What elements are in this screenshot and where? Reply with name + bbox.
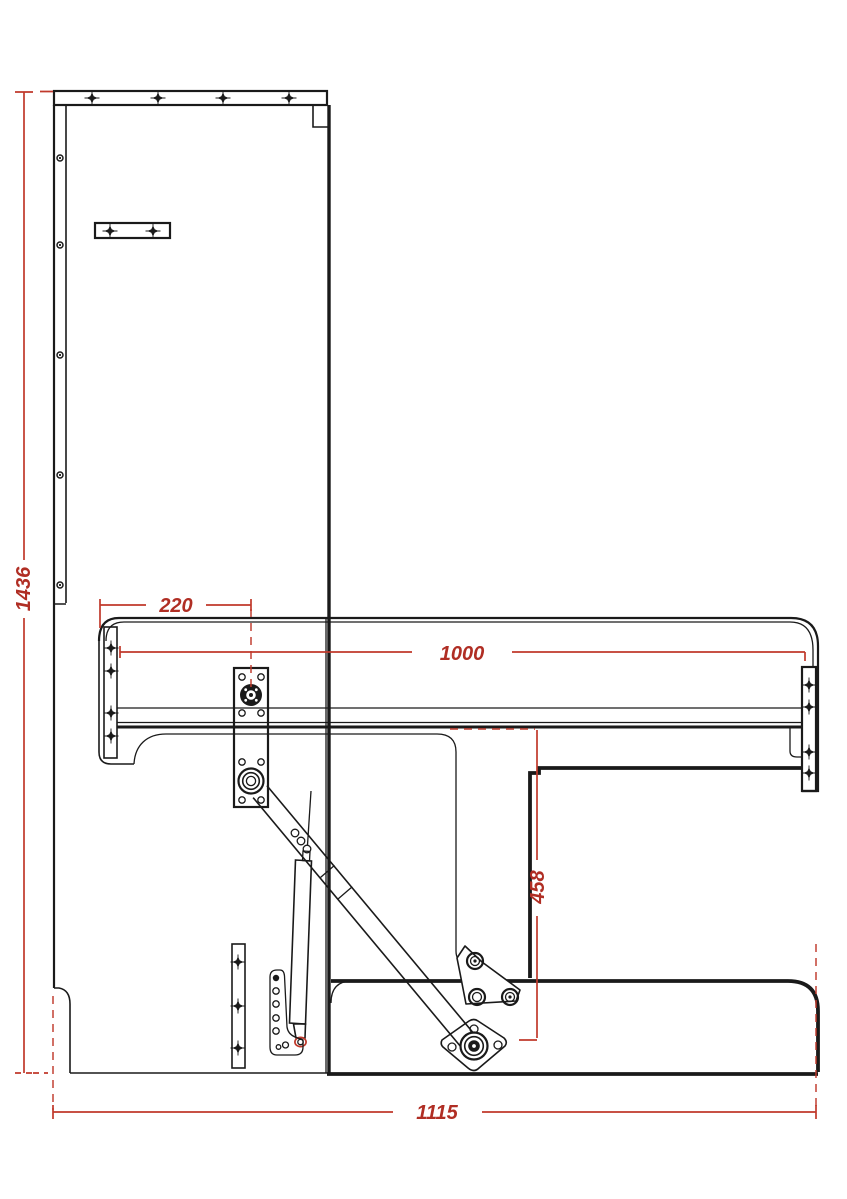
side-plate: [231, 944, 246, 1068]
top-rail-screws: [85, 91, 297, 106]
cabinet-panel: [54, 91, 328, 1074]
dim-label-1000: 1000: [440, 643, 485, 665]
right-inner-notch: [790, 728, 802, 757]
arm-end-bracket: [441, 1020, 506, 1071]
left-frame-bracket: [104, 627, 119, 758]
right-frame-bracket: [802, 667, 817, 791]
lift-arm: [253, 786, 480, 1053]
toe-kick-step: [54, 988, 70, 1073]
dim-label-458: 458: [527, 869, 549, 904]
dim-pivot-offset: 220: [100, 595, 251, 688]
bed-frame: [99, 618, 818, 962]
dim-overall-width: 1115: [53, 944, 816, 1124]
mounting-bracket-small: [95, 223, 170, 239]
dim-label-220: 220: [158, 595, 192, 617]
dim-frame-length: 1000: [120, 643, 805, 665]
lower-pivot-hub: [239, 769, 264, 794]
drawing-canvas: 1436 220 1000 458 1115: [0, 0, 847, 1199]
seat-back-panel: [530, 768, 802, 978]
technical-drawing: 1436 220 1000 458 1115: [0, 0, 847, 1199]
upper-pivot-hub: [240, 684, 262, 706]
panel-top-notch: [313, 106, 328, 127]
dim-overall-height: 1436: [13, 92, 53, 1074]
gas-spring: [290, 851, 312, 1047]
seat-cutout-contour: [134, 734, 464, 962]
seat-base-panel: [327, 981, 818, 1074]
link-bracket: [457, 946, 520, 1005]
wall-strip: [54, 105, 66, 988]
dim-label-1115: 1115: [416, 1102, 458, 1124]
dim-label-1436: 1436: [13, 566, 35, 611]
